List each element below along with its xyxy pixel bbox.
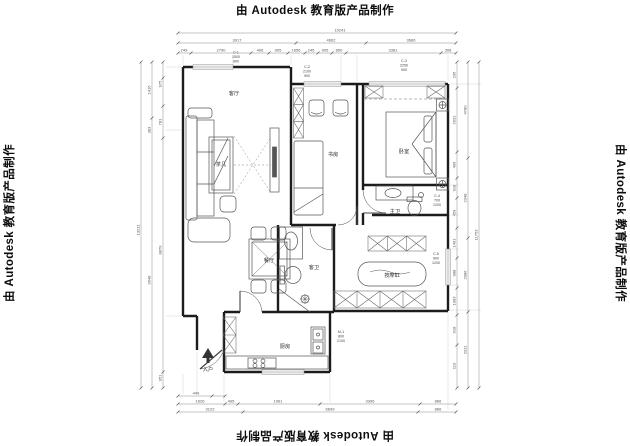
dim-right: 918: [452, 184, 457, 191]
dim-top: 4662: [327, 38, 337, 43]
dim-top: 245: [308, 48, 315, 53]
dim-top: 3917: [233, 38, 243, 43]
tag-c5: 900: [433, 257, 439, 261]
room-label-bedroom: 卧室: [399, 147, 409, 155]
dim-right: 1083: [452, 296, 457, 306]
dim-bottom: 866: [435, 407, 442, 412]
sofa-stool: [220, 196, 236, 212]
study-chair-1: [309, 100, 324, 116]
dim-bottom: 6699: [326, 407, 336, 412]
dim-right: 110: [452, 362, 457, 369]
dim-right: 2931: [452, 115, 457, 125]
kitchen-fixtures: [226, 327, 328, 369]
dim-right: 206: [452, 71, 457, 78]
dim-right: 918: [452, 326, 457, 333]
tag-c3: 900: [401, 68, 407, 72]
tag-c1: C-1: [233, 51, 239, 55]
room-label-master-bath: 主卫: [390, 207, 400, 215]
guest-toilet-bowl: [285, 267, 301, 284]
vanity-counter: [376, 186, 413, 200]
study-bed: [294, 141, 323, 215]
dim-right: 499: [452, 161, 457, 168]
dim-right: 988: [452, 269, 457, 276]
dining-chair-1: [251, 227, 266, 240]
tag-c5: C-5: [433, 252, 439, 256]
living-furniture: [186, 108, 279, 242]
dimension-lines: [141, 33, 479, 412]
entry-arrow: [202, 348, 214, 363]
room-label-bathtub: 按摩缸: [384, 271, 400, 279]
dim-bottom: 1626: [196, 399, 206, 404]
bath-door-arc: [363, 190, 386, 213]
room-label-coffee-table: 茶几: [216, 160, 226, 168]
tag-m1: 2100: [337, 339, 345, 343]
tag-m1: 800: [338, 335, 344, 339]
dim-right: 2311: [463, 345, 468, 354]
dim-bottom: 495: [228, 399, 235, 404]
dim-bottom: 3122: [206, 407, 216, 412]
dim-right: 2348: [463, 193, 468, 203]
study-door-arc: [338, 206, 357, 225]
dim-left: 1416: [147, 85, 152, 95]
dim-top: 2790: [217, 48, 227, 53]
dim-top: 905: [275, 48, 282, 53]
bedroom-furniture: [364, 99, 449, 190]
tag-c4: 1200: [433, 203, 441, 207]
windows: [193, 65, 451, 375]
dim-left: 9648: [147, 275, 152, 285]
tag-c2: 900: [304, 74, 310, 78]
toilet-bowl: [408, 201, 421, 216]
tag-c4: C-4: [434, 194, 440, 198]
dim-top: 308: [445, 48, 452, 53]
pillow-1: [424, 116, 432, 142]
guest-sink: [285, 232, 298, 250]
tag-c5: 1200: [432, 261, 440, 265]
dim-right: 2986: [463, 270, 468, 280]
tag-m1: M-1: [338, 330, 344, 334]
tag-c2: C-2: [304, 65, 310, 69]
dim-bottom: 1961: [274, 399, 284, 404]
kitchen-door-arc: [240, 291, 262, 312]
dim-left: 975: [158, 80, 163, 87]
dim-left: 8879: [158, 245, 163, 255]
dim-top-total: 10241: [334, 28, 346, 33]
tag-c1: 900: [233, 60, 239, 64]
guest-bath-door-arc: [310, 228, 332, 250]
dim-left: 951: [158, 374, 163, 381]
tag-c2: 2100: [303, 70, 311, 74]
study-chair-2: [333, 100, 348, 116]
dim-left-outer: 13211: [136, 224, 141, 236]
floor-plan-drawing: 客厅 茶几 书房 卧室 主卫 客卫 餐厅 厨房 按摩缸 入户 C-1 1500 …: [0, 0, 630, 446]
tag-c4: 700: [434, 199, 440, 203]
dim-top: 3666: [407, 38, 417, 43]
sink: [385, 189, 401, 198]
dim-top: 850: [336, 48, 343, 53]
room-label-entry: 入户: [203, 365, 213, 373]
sofa-seats: [197, 120, 214, 216]
dim-bottom: 449: [193, 391, 200, 396]
dim-top: 905: [322, 48, 329, 53]
dim-top: 1656: [292, 48, 302, 53]
tag-c1: 1500: [232, 55, 240, 59]
dim-right: 4780: [463, 105, 468, 115]
kitchen-counter: [226, 356, 328, 369]
dim-top: 3381: [389, 48, 399, 53]
dining-chair-3: [251, 280, 266, 293]
dim-bottom: 866: [435, 399, 442, 404]
dim-right-outer: 11753: [474, 229, 479, 241]
dim-top: 406: [257, 48, 264, 53]
sofa-arm-top: [188, 108, 212, 118]
room-label-living: 客厅: [229, 89, 239, 97]
dim-left: 383: [147, 126, 152, 133]
dim-right: 1491: [452, 238, 457, 248]
tag-c3: C-3: [401, 59, 407, 63]
tag-c3: 2250: [400, 64, 408, 68]
dim-bottom: 3396: [366, 399, 376, 404]
tv: [273, 147, 277, 177]
tv-view-lines: [234, 136, 271, 194]
guest-toilet-tank: [280, 266, 285, 284]
room-label-dining: 餐厅: [264, 256, 274, 264]
room-label-kitchen: 厨房: [280, 342, 290, 350]
sofa-chaise: [188, 218, 230, 242]
dim-top: 249: [181, 48, 188, 53]
dim-left: 781: [158, 118, 163, 125]
sofa-back: [186, 116, 197, 220]
dim-right: 459: [452, 209, 457, 216]
room-label-study: 书房: [328, 150, 338, 158]
room-label-guest-bath: 客卫: [309, 263, 319, 271]
study-furniture: [294, 100, 348, 215]
shower-corner: [279, 289, 310, 312]
